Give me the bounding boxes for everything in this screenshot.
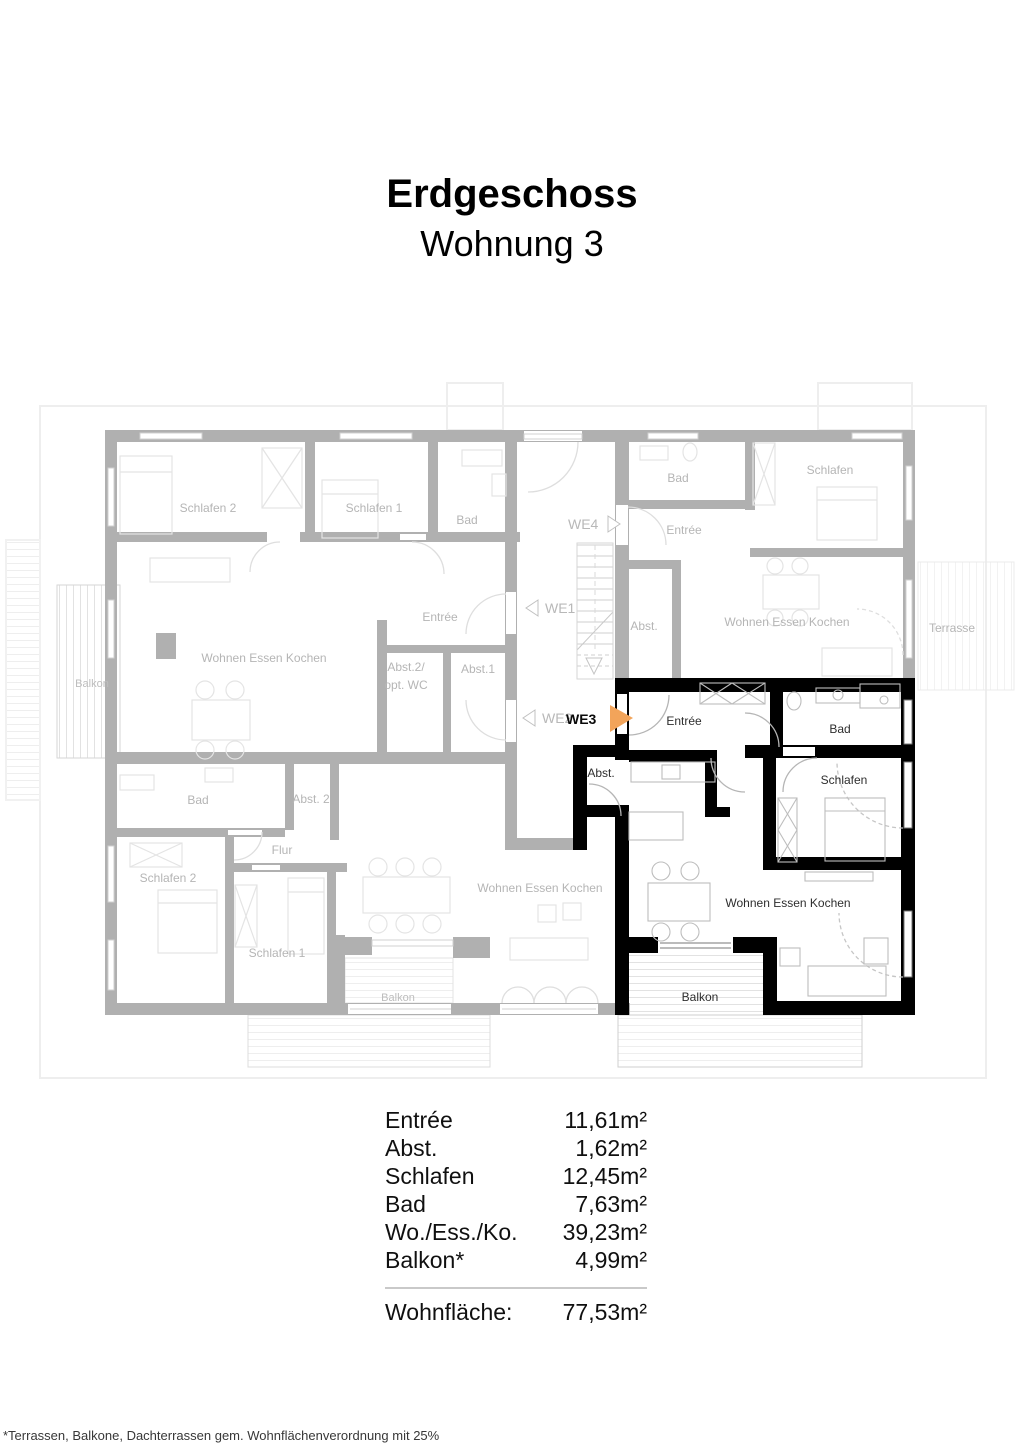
- area-row-label: Entrée: [385, 1106, 453, 1134]
- room-label: Abst.1: [461, 662, 495, 676]
- room-label: Schlafen: [821, 773, 868, 787]
- marker-we4-label: WE4: [568, 516, 599, 532]
- room-label: Entrée: [666, 523, 702, 537]
- room-label: Flur: [272, 843, 293, 857]
- area-row: Schlafen 12,45m²: [385, 1162, 647, 1190]
- room-label: Bad: [187, 793, 208, 807]
- marker-we1-label: WE1: [545, 600, 576, 616]
- area-row-value: 1,62m²: [575, 1134, 647, 1162]
- room-label: Abst.2/: [387, 660, 425, 674]
- room-label: Abst. 2: [292, 792, 330, 806]
- area-row-value: 39,23m²: [563, 1218, 647, 1246]
- marker-we2-arrow-icon: [523, 710, 535, 726]
- balcony-we3-deck: [618, 1015, 862, 1067]
- area-row-label: Wo./Ess./Ko.: [385, 1218, 518, 1246]
- room-label: Entrée: [422, 610, 458, 624]
- area-total-value: 77,53m²: [563, 1298, 647, 1326]
- room-label: Terrasse: [929, 621, 975, 635]
- room-label: opt. WC: [384, 678, 428, 692]
- room-label: Schlafen 2: [180, 501, 237, 515]
- room-label: Wohnen Essen Kochen: [477, 881, 602, 895]
- staircase: [577, 543, 613, 679]
- room-label: Wohnen Essen Kochen: [724, 615, 849, 629]
- area-row-label: Schlafen: [385, 1162, 475, 1190]
- marker-we3-label: WE3: [566, 711, 597, 727]
- room-label: Entrée: [666, 714, 702, 728]
- area-row: Entrée 11,61m²: [385, 1106, 647, 1134]
- footnote: *Terrassen, Balkone, Dachterrassen gem. …: [3, 1428, 439, 1443]
- room-label: Schlafen 2: [140, 871, 197, 885]
- room-label: Schlafen: [807, 463, 854, 477]
- room-label: Abst.: [587, 766, 614, 780]
- area-table: Entrée 11,61m² Abst. 1,62m² Schlafen 12,…: [385, 1106, 647, 1326]
- area-row-value: 7,63m²: [575, 1190, 647, 1218]
- room-label: Wohnen Essen Kochen: [725, 896, 850, 910]
- room-label: Abst.: [630, 619, 657, 633]
- marker-we1-arrow-icon: [526, 600, 538, 616]
- area-row-value: 11,61m²: [564, 1106, 647, 1134]
- area-row-value: 12,45m²: [563, 1162, 647, 1190]
- room-label: Schlafen 1: [249, 946, 306, 960]
- balcony-we2-deck: [248, 1015, 490, 1067]
- room-label: Balkon: [75, 678, 109, 690]
- table-divider: [385, 1287, 647, 1289]
- we3-door-arcs: [589, 695, 903, 977]
- room-label: Bad: [667, 471, 688, 485]
- room-label: Wohnen Essen Kochen: [201, 651, 326, 665]
- area-row: Wo./Ess./Ko. 39,23m²: [385, 1218, 647, 1246]
- room-label: Schlafen 1: [346, 501, 403, 515]
- area-row-value: 4,99m²: [575, 1246, 647, 1274]
- room-label: Bad: [829, 722, 850, 736]
- area-row-label: Abst.: [385, 1134, 437, 1162]
- area-total-label: Wohnfläche:: [385, 1298, 512, 1326]
- area-row-label: Balkon*: [385, 1246, 464, 1274]
- area-row-label: Bad: [385, 1190, 426, 1218]
- room-label: Balkon: [381, 992, 415, 1004]
- room-label: Balkon: [682, 990, 719, 1004]
- room-label: Bad: [456, 513, 477, 527]
- area-row: Bad 7,63m²: [385, 1190, 647, 1218]
- area-row: Balkon* 4,99m²: [385, 1246, 647, 1274]
- area-row: Abst. 1,62m²: [385, 1134, 647, 1162]
- area-total-row: Wohnfläche: 77,53m²: [385, 1298, 647, 1326]
- balconies-terraces: [57, 562, 1014, 1067]
